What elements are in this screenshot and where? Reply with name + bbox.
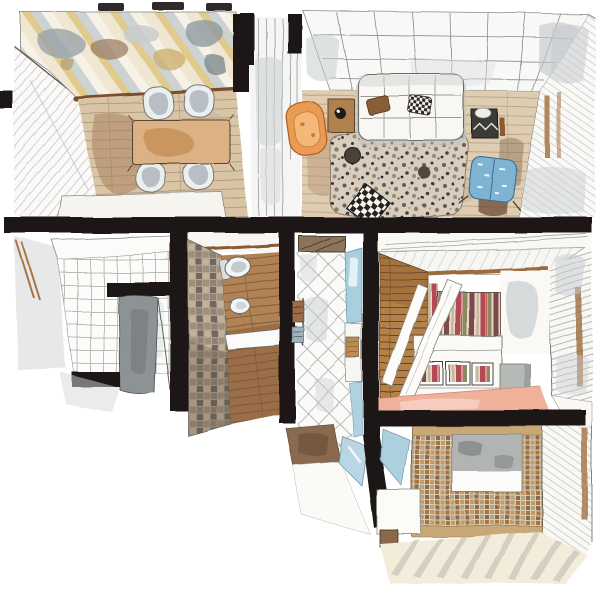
- dining-room: [14, 12, 249, 218]
- dining-chair: [142, 86, 175, 121]
- door-jamb-top: [106, 282, 172, 296]
- living-door-frame: [545, 96, 550, 158]
- black-wall-band-lower: [376, 410, 586, 426]
- rug-tray: [344, 147, 360, 163]
- white-cabinet: [377, 490, 421, 534]
- hall-black-stub: [287, 13, 301, 53]
- appliance-niche: [452, 434, 522, 492]
- mosaic-wall: [412, 426, 542, 537]
- shower-room: [286, 233, 392, 534]
- floor-plan-canvas: Watercolor axonometric floor plan of an …: [0, 0, 600, 600]
- window-wall: [548, 248, 592, 402]
- laundry-door-frame: [582, 428, 588, 520]
- plant-stick: [500, 118, 505, 136]
- glass-panel-upper: [345, 248, 362, 324]
- side-table-kettle: [328, 99, 354, 132]
- dining-chair: [183, 84, 216, 118]
- floor-plan-illustration: Watercolor axonometric floor plan of an …: [0, 0, 600, 600]
- towel-rail: [292, 298, 304, 346]
- diamond-tile-floor: [297, 252, 352, 452]
- living-room: [285, 10, 595, 227]
- left-edge-wall-chunk: [0, 91, 13, 109]
- toilet-room: [188, 233, 298, 436]
- rug-bowl: [418, 166, 430, 178]
- entry-wc-divider-wall: [170, 233, 188, 411]
- striped-pillows: [419, 362, 493, 385]
- bath-mat: [286, 424, 340, 465]
- teak-bench: [346, 324, 362, 382]
- shower-bedroom-wall: [363, 233, 379, 435]
- hall-black-stub: [240, 13, 254, 65]
- black-wall-band: [4, 217, 592, 233]
- white-wall-panel: [500, 270, 550, 354]
- dining-table: [127, 115, 235, 171]
- sofa-pillow-checkered: [408, 95, 434, 116]
- ceiling-vent: [299, 236, 345, 252]
- top-edge-wall-dashes: [98, 2, 232, 11]
- dining-bench: [58, 192, 226, 218]
- sofa: [355, 74, 467, 146]
